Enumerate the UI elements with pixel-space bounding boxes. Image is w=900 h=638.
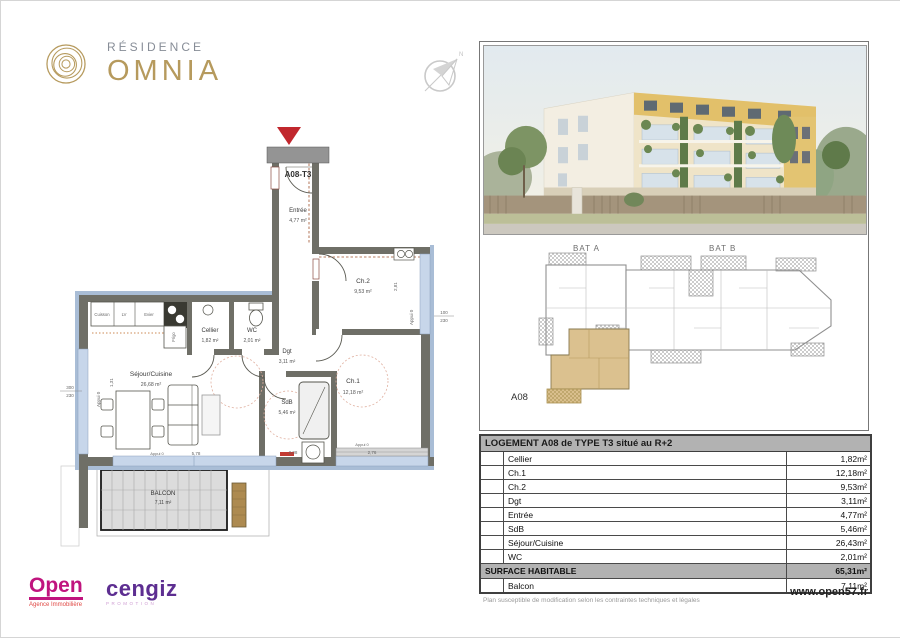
key-plan: BAT A BAT B [489, 238, 859, 426]
room-label-ch2: Ch.2 [356, 278, 370, 285]
table-total-row: SURFACE HABITABLE65,31m² [481, 564, 870, 579]
keyplan-unit-label: A08 [511, 392, 528, 403]
table-row: SdB5,46m² [481, 522, 870, 536]
dim-left-w: 300 [66, 385, 74, 390]
plan-disclaimer: Plan susceptible de modification selon l… [483, 597, 700, 604]
kitchen-label-lv: LV [122, 312, 127, 317]
areas-table-title: LOGEMENT A08 de TYPE T3 situé au R+2 [481, 436, 870, 452]
open-logo-text: Open [29, 576, 83, 600]
row-value: 9,53m² [786, 480, 870, 493]
balcony-area: BALCON 7,11 m² [61, 466, 269, 546]
omnia-spiral-icon [37, 35, 95, 93]
stove [164, 302, 187, 328]
table-row: Entrée4,77m² [481, 508, 870, 522]
row-label: SdB [504, 522, 786, 535]
right-panel: BAT A BAT B [479, 41, 869, 431]
areas-table: LOGEMENT A08 de TYPE T3 situé au R+2 Cel… [479, 434, 872, 594]
room-label-wc: WC [247, 328, 258, 334]
row-label: Entrée [504, 508, 786, 521]
room-area-dgt: 3,11 m² [279, 359, 296, 365]
room-label-entree: Entrée [289, 208, 307, 214]
bathroom-fixtures [280, 382, 329, 463]
dim-sdb-width: 2,08 [289, 450, 298, 455]
dim-appui-ch1: Appui 0 [355, 442, 369, 447]
keyplan-bat-b-label: BAT B [709, 244, 736, 253]
row-value: 1,82m² [786, 452, 870, 465]
dim-ch2-height: 2,81 [393, 282, 398, 291]
total-value: 65,31m² [786, 564, 870, 578]
kitchen-fixtures: Cuisson LV Evier Frigo [91, 302, 213, 348]
building-render-photo [483, 45, 867, 235]
row-value: 4,77m² [786, 508, 870, 521]
living-furniture [101, 385, 220, 449]
room-label-cellier: Cellier [201, 328, 218, 334]
room-label-sejour: Séjour/Cuisine [130, 371, 173, 378]
room-area-ch1: 12,18 m² [343, 390, 364, 396]
dim-left-window: 1,31 [109, 378, 114, 387]
cengiz-logo-tagline: PROMOTION [106, 601, 177, 606]
room-area-entree: 4,77 m² [289, 218, 307, 224]
table-row: WC2,01m² [481, 550, 870, 564]
table-row: Dgt3,11m² [481, 494, 870, 508]
entry-arrow-icon [277, 127, 301, 145]
row-label: Ch.2 [504, 480, 786, 493]
boundary-dashed-line [309, 159, 428, 257]
room-label-dgt: Dgt [282, 349, 292, 355]
row-value: 3,11m² [786, 494, 870, 507]
table-row: Ch.112,18m² [481, 466, 870, 480]
dim-right-h: 230 [440, 318, 448, 323]
residence-logo: RÉSIDENCE OMNIA [37, 35, 222, 93]
table-row: Ch.29,53m² [481, 480, 870, 494]
total-label: SURFACE HABITABLE [481, 564, 786, 578]
room-area-ch2: 9,53 m² [354, 289, 372, 295]
dim-appui-bay: Appui 0 [150, 451, 164, 456]
row-value: 26,43m² [786, 536, 870, 549]
annex-label: Balcon [504, 579, 786, 592]
sofa [168, 385, 198, 445]
dim-right-w: 100 [440, 310, 448, 315]
kitchen-label-cuisson: Cuisson [94, 312, 110, 317]
cengiz-logo-text: cengiz [106, 578, 177, 600]
brand-omnia-label: OMNIA [107, 55, 222, 88]
brand-residence-label: RÉSIDENCE [107, 40, 222, 54]
room-label-balcon: BALCON [151, 491, 176, 497]
dim-appui-right: Appui 0 [409, 309, 414, 325]
unit-tag-label: A08-T3 [285, 170, 312, 179]
kitchen-label-evier: Evier [144, 312, 154, 317]
plan-sheet-page: RÉSIDENCE OMNIA N [0, 0, 900, 638]
website-link[interactable]: www.open57.fr [790, 586, 868, 598]
row-label: Dgt [504, 494, 786, 507]
wc-fixtures [249, 303, 263, 326]
keyplan-bat-a-label: BAT A [573, 244, 600, 253]
open-logo-tagline: Agence Immobilière [29, 602, 83, 608]
door-arcs [192, 167, 346, 399]
dim-left-h: 230 [66, 393, 74, 398]
dim-ch1-width: 2,76 [368, 450, 377, 455]
dim-appui-left: Appui 0 [96, 391, 101, 407]
north-compass-icon: N [413, 45, 469, 101]
cengiz-logo: cengiz PROMOTION [106, 578, 177, 606]
room-label-ch1: Ch.1 [346, 378, 360, 385]
row-value: 5,46m² [786, 522, 870, 535]
kitchen-label-frigo: Frigo [171, 332, 176, 342]
table-row: Cellier1,82m² [481, 452, 870, 466]
row-label: Séjour/Cuisine [504, 536, 786, 549]
floor-plan: BALCON 7,11 m² [56, 119, 471, 569]
row-label: Cellier [504, 452, 786, 465]
open-agency-logo: Open Agence Immobilière [29, 576, 83, 608]
room-area-sdb: 5,46 m² [279, 410, 296, 416]
room-area-cellier: 1,82 m² [202, 338, 219, 344]
balcony-separator-panel [232, 483, 246, 527]
dim-sejour-width: 5,78 [192, 451, 201, 456]
side-table [202, 395, 220, 435]
table-row: Séjour/Cuisine26,43m² [481, 536, 870, 550]
room-area-wc: 2,01 m² [244, 338, 261, 344]
room-area-sejour: 26,68 m² [141, 382, 162, 388]
row-value: 12,18m² [786, 466, 870, 479]
entrance-landing [267, 127, 329, 163]
row-label: Ch.1 [504, 466, 786, 479]
room-area-balcon: 7,11 m² [155, 500, 172, 506]
room-label-sdb: SdB [281, 400, 292, 406]
row-value: 2,01m² [786, 550, 870, 563]
row-label: WC [504, 550, 786, 563]
compass-north-label: N [459, 52, 463, 58]
water-heater [203, 305, 213, 315]
